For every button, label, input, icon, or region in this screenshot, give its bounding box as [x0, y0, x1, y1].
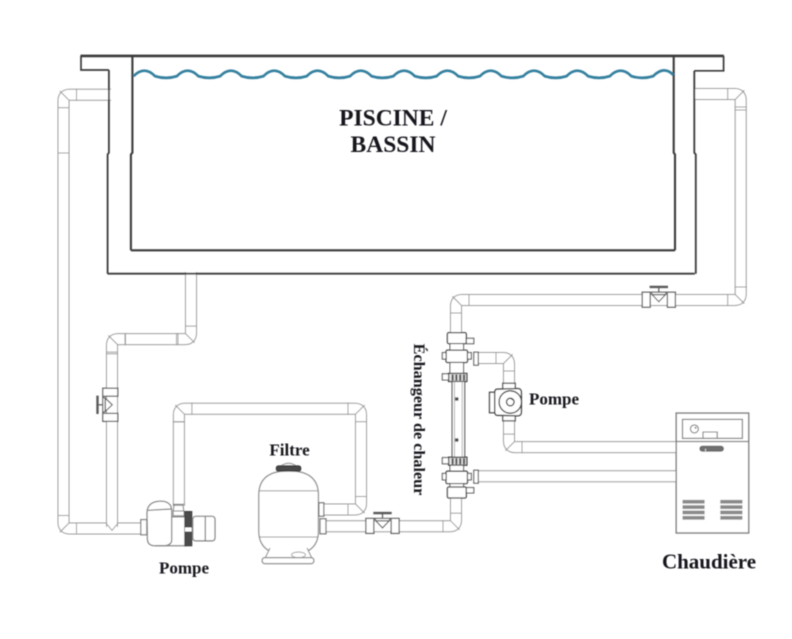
svg-text:PISCINE /: PISCINE /	[339, 106, 447, 132]
svg-text:Filtre: Filtre	[269, 441, 310, 460]
svg-text:Pompe: Pompe	[529, 390, 580, 409]
svg-text:Chaudière: Chaudière	[662, 550, 756, 574]
svg-text:Échangeur de chaleur: Échangeur de chaleur	[410, 344, 429, 496]
svg-text:BASSIN: BASSIN	[351, 132, 436, 158]
svg-text:Pompe: Pompe	[159, 559, 210, 578]
